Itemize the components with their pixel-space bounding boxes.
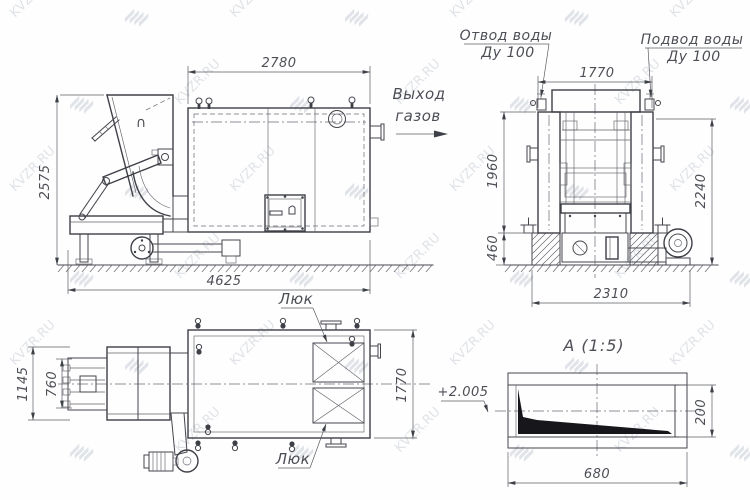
hatch-openings	[313, 343, 364, 423]
hatch-callout-top: Люк	[278, 290, 327, 342]
dim-text: 200	[694, 399, 709, 425]
dimension-2240: 2240	[656, 119, 716, 265]
label-text: Выход	[392, 85, 445, 103]
top-flange-circle	[329, 111, 346, 128]
feeder-platform	[70, 216, 188, 264]
eyebolt-icon	[195, 318, 200, 328]
elevation-mark: +2.005	[437, 385, 488, 412]
watermark-logo-icon	[563, 4, 590, 31]
eyebolt-icon	[195, 440, 200, 450]
watermark-text: KVZR.RU	[172, 57, 223, 108]
blower-plan	[176, 450, 198, 472]
dim-text: 2310	[593, 287, 628, 302]
left-side-flange	[530, 148, 538, 160]
watermark-text: KVZR.RU	[172, 405, 223, 456]
detail-title: А (1:5)	[562, 336, 624, 355]
dim-text: 1145	[16, 366, 31, 401]
watermark-logo-icon	[728, 439, 750, 466]
dimension-460: 460	[486, 233, 510, 265]
grate-mechanism	[561, 204, 630, 262]
callout-text: Подвод воды	[641, 32, 744, 48]
watermark-logo-icon	[123, 178, 150, 205]
lifting-eyebolts-plan	[195, 318, 359, 451]
dim-text: 460	[486, 235, 501, 261]
dim-text: 2240	[694, 173, 709, 208]
ground-hatching	[505, 265, 711, 272]
watermark-text: KVZR.RU	[227, 0, 278, 21]
hopper-symbol: ∩	[136, 115, 146, 131]
eyebolt-icon	[232, 440, 237, 450]
screw-jack-right	[655, 218, 670, 233]
watermark-logo-icon	[343, 4, 370, 31]
dim-text: 1770	[395, 367, 410, 402]
dim-text: 1960	[486, 153, 501, 188]
flange-stub-bottom	[326, 438, 346, 447]
watermark-text: KVZR.RU	[392, 231, 443, 282]
watermark-logo-icon	[68, 265, 95, 292]
watermark-logo-icon	[68, 439, 95, 466]
ground-hatching	[58, 265, 432, 272]
callout-text: Ду 100	[480, 45, 534, 61]
eyebolt-icon	[354, 318, 359, 328]
watermark-text: KVZR.RU	[227, 144, 278, 195]
flange-stub-right	[370, 344, 381, 358]
callout-text: Отвод воды	[460, 28, 553, 44]
eyebolt-icon	[349, 97, 355, 108]
dim-text: 4625	[206, 274, 241, 289]
watermark-logo-icon	[123, 4, 150, 31]
watermark-text: KVZR.RU	[667, 0, 718, 21]
hatch-callout-bottom: Люк	[275, 424, 326, 468]
dimension-1960: 1960	[486, 112, 536, 233]
dim-text: 760	[45, 371, 60, 397]
dim-text: 2780	[261, 56, 296, 71]
dim-text: 1770	[579, 66, 614, 81]
water-outlet-callout: Отвод воды Ду 100	[460, 28, 553, 97]
eyebolt-icon	[205, 424, 210, 434]
watermark-text: KVZR.RU	[447, 318, 498, 369]
water-inlet-fitting	[645, 94, 661, 110]
door-handle	[270, 211, 282, 215]
eyebolt-icon	[349, 336, 354, 346]
watermark-text: KVZR.RU	[227, 318, 278, 369]
gas-exit-label: Выход газов	[392, 85, 448, 138]
dim-text: 2575	[38, 164, 53, 199]
watermark-logo-icon	[508, 439, 535, 466]
label-text: газов	[395, 107, 441, 125]
hopper-handle	[92, 117, 119, 141]
callout-text: Люк	[275, 450, 310, 468]
eyebolt-icon	[196, 344, 201, 354]
eyebolt-icon	[280, 318, 285, 328]
side-flange	[370, 126, 381, 138]
inspection-door	[265, 195, 305, 231]
callout-text: Ду 100	[666, 49, 720, 65]
watermark-logo-icon	[728, 91, 750, 118]
watermark-logo-icon	[123, 352, 150, 379]
dim-text: 680	[584, 467, 610, 482]
watermark-logo-icon	[343, 178, 370, 205]
dimension-2310: 2310	[532, 270, 690, 307]
watermark-logo-icon	[563, 352, 590, 379]
elevation-text: +2.005	[437, 385, 488, 400]
watermark-logo-icon	[728, 265, 750, 292]
watermark-text: KVZR.RU	[667, 144, 718, 195]
watermark-text: KVZR.RU	[7, 0, 58, 21]
watermark-text: KVZR.RU	[447, 0, 498, 21]
technical-drawing-page: KVZR.RUKVZR.RUKVZR.RUKVZR.RUKVZR.RUKVZR.…	[0, 0, 750, 500]
right-side-flange	[653, 148, 661, 160]
boiler-body-side	[188, 108, 384, 232]
drain-fitting	[370, 218, 378, 226]
motor-plan	[144, 452, 178, 471]
watermark-text: KVZR.RU	[392, 405, 443, 456]
flange-stub-top	[321, 321, 341, 330]
dimension-200: 200	[679, 385, 716, 437]
gas-flow-arrow-icon	[434, 131, 448, 138]
hydraulic-cylinder	[79, 149, 173, 220]
screw-jack-left	[521, 218, 536, 233]
dimension-680: 680	[508, 452, 687, 487]
grate-section	[508, 373, 687, 448]
callout-text: Люк	[278, 290, 313, 308]
drawing-canvas: KVZR.RUKVZR.RUKVZR.RUKVZR.RUKVZR.RUKVZR.…	[0, 0, 750, 500]
watermark-text: KVZR.RU	[667, 318, 718, 369]
dimension-2575: 2575	[38, 95, 104, 265]
lifting-eyebolts-side	[196, 97, 355, 109]
dimension-4625: 4625	[68, 240, 370, 294]
